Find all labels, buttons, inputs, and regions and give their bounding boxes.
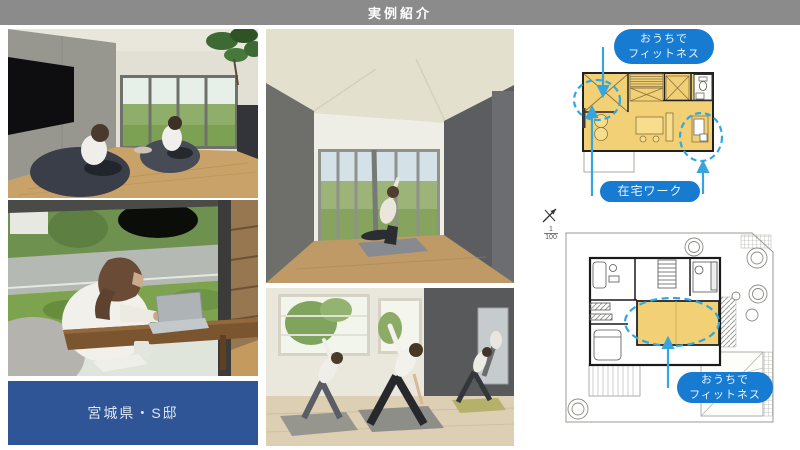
slide: 実例紹介 (0, 0, 800, 450)
window-left (278, 294, 370, 356)
plan-scale: 1100 (542, 226, 560, 242)
work-nook (692, 116, 708, 142)
callout-fitness-1f-line1: おうちで (701, 373, 749, 387)
callout-fitness-2f-line2: フィットネス (628, 47, 700, 61)
location-label: 宮城県・S邸 (87, 403, 178, 423)
side-table (134, 147, 152, 154)
garden-slope (719, 297, 736, 347)
garden-patch (741, 235, 771, 248)
scale-numerator: 1 (542, 226, 560, 233)
photo-remote-work (8, 200, 258, 376)
wood-deck (589, 364, 640, 396)
photo-yoga-group (266, 288, 514, 446)
plan-2f (574, 47, 722, 196)
tv (8, 57, 74, 135)
photo-yoga-solo (266, 29, 514, 283)
header-bar: 実例紹介 (0, 0, 800, 25)
callout-fitness-2f-line1: おうちで (640, 32, 688, 46)
location-label-box: 宮城県・S邸 (8, 381, 258, 445)
callout-fitness-1f-line2: フィットネス (689, 388, 761, 402)
page-title: 実例紹介 (368, 3, 432, 22)
scale-denominator: 100 (544, 233, 558, 241)
callout-fitness-1f: おうちで フィットネス (677, 372, 773, 403)
mirror (478, 308, 508, 384)
bathroom (694, 75, 712, 101)
fitness-room-1f (637, 301, 719, 345)
callout-work-2f: 在宅ワーク (600, 181, 700, 202)
north-arrow-icon (543, 209, 556, 222)
photo-living-room (8, 29, 258, 198)
callout-fitness-2f: おうちで フィットネス (614, 29, 714, 64)
callout-work-2f-label: 在宅ワーク (617, 184, 682, 200)
